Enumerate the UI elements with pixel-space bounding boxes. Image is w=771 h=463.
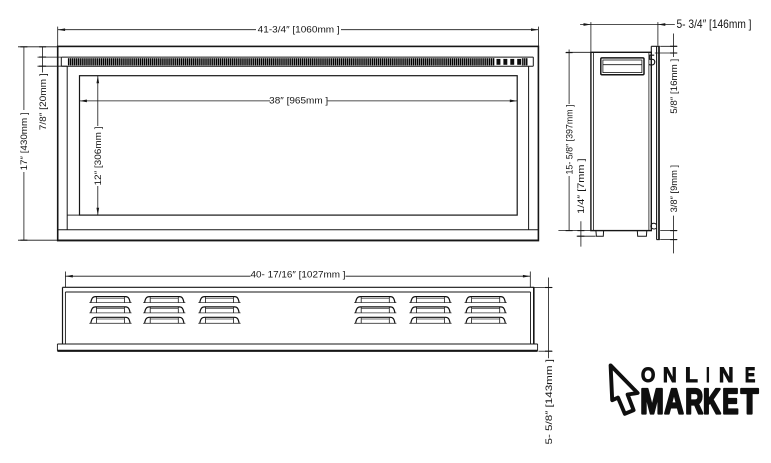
- svg-text:17″ [430mm ]: 17″ [430mm ]: [19, 112, 30, 170]
- svg-text:12″ [306mm ]: 12″ [306mm ]: [93, 127, 104, 186]
- svg-text:38″ [965mm ]: 38″ [965mm ]: [269, 96, 328, 107]
- svg-text:5- 3/4″ [146mm ]: 5- 3/4″ [146mm ]: [677, 17, 752, 31]
- svg-text:41-3/4″ [1060mm ]: 41-3/4″ [1060mm ]: [258, 25, 340, 36]
- svg-text:15- 5/8″ [397mm ]: 15- 5/8″ [397mm ]: [564, 105, 575, 175]
- svg-text:M: M: [640, 383, 664, 422]
- svg-text:T: T: [741, 383, 759, 422]
- svg-text:5/8″ [16mm ]: 5/8″ [16mm ]: [669, 59, 680, 114]
- svg-text:7/8″ [20mm ]: 7/8″ [20mm ]: [38, 73, 49, 130]
- svg-text:1/4″ [7mm ]: 1/4″ [7mm ]: [576, 158, 587, 214]
- svg-text:A: A: [664, 383, 684, 422]
- svg-text:3/8″ [9mm ]: 3/8″ [9mm ]: [669, 165, 680, 213]
- svg-text:5- 5/8″ [143mm ]: 5- 5/8″ [143mm ]: [544, 359, 555, 445]
- svg-text:R: R: [685, 383, 703, 422]
- svg-text:K: K: [703, 383, 721, 422]
- svg-text:E: E: [722, 383, 738, 422]
- svg-text:40- 17/16″ [1027mm ]: 40- 17/16″ [1027mm ]: [251, 270, 346, 281]
